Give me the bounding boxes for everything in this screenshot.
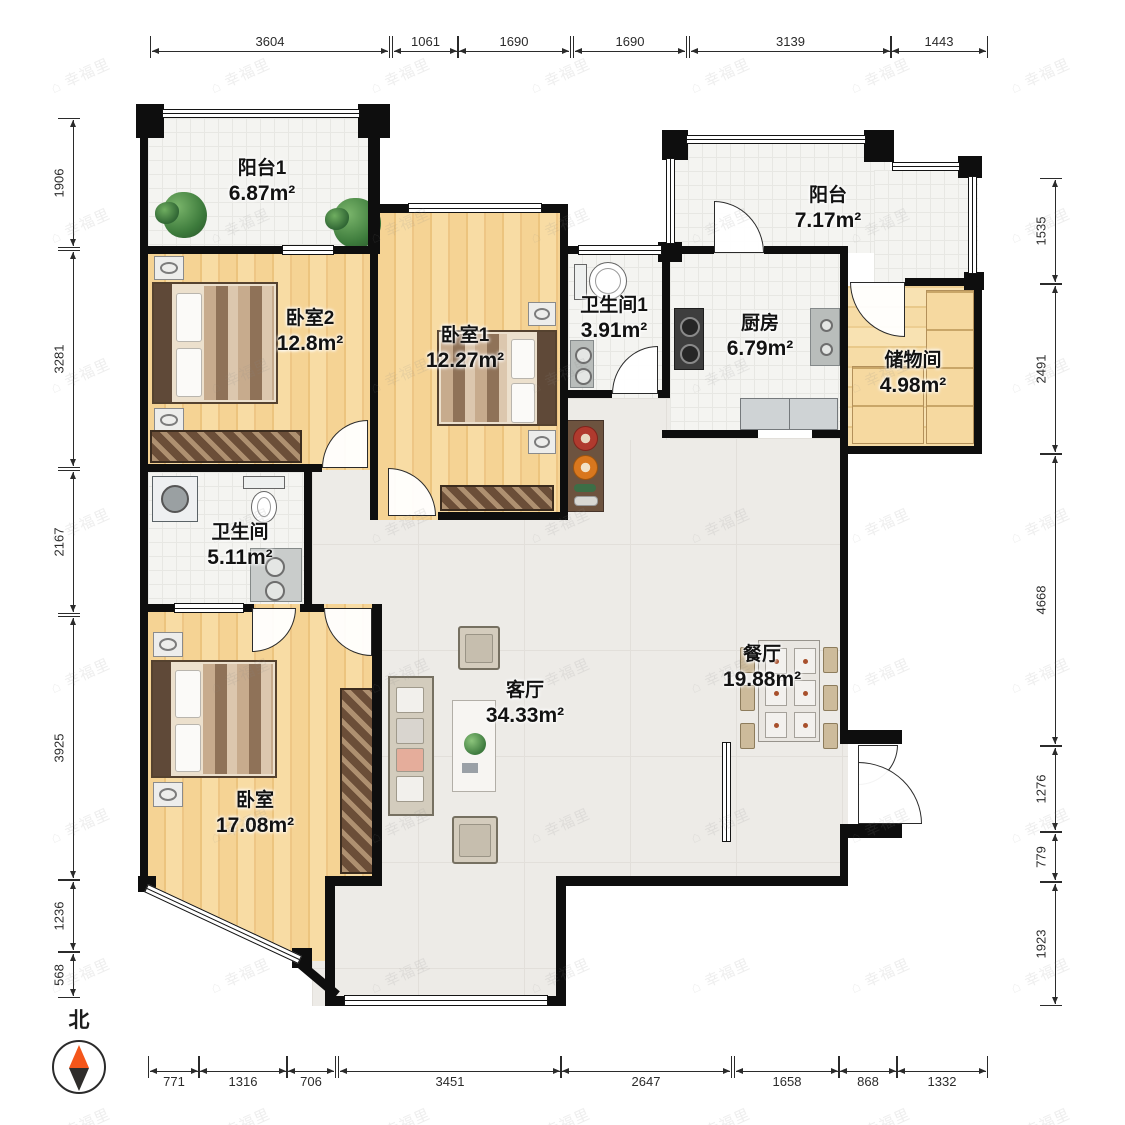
dim-value: 2491 [1034, 355, 1049, 384]
compass-needle-south [69, 1068, 89, 1091]
room-area: 34.33m² [455, 703, 595, 728]
dim-bottom-5: 1658 [734, 1056, 840, 1078]
wardrobe [150, 430, 302, 463]
washing-machine [152, 476, 198, 522]
dim-value: 3281 [52, 345, 67, 374]
compass-icon [52, 1040, 106, 1094]
nightstand [153, 632, 183, 657]
dim-right-1: 2491 [1040, 284, 1062, 454]
wall [546, 996, 566, 1006]
wall-post [958, 156, 982, 178]
north-label: 北 [46, 1004, 112, 1034]
wall [368, 108, 380, 253]
dim-left-2: 2167 [58, 470, 80, 614]
wall [300, 604, 324, 612]
dim-left-3: 3925 [58, 616, 80, 880]
window [968, 176, 977, 274]
room-area: 12.8m² [240, 331, 380, 356]
room-area: 19.88m² [700, 667, 824, 692]
dim-value: 1535 [1034, 217, 1049, 246]
wall [140, 246, 282, 254]
window [408, 203, 542, 213]
room-label-bedroom1: 卧室1 12.27m² [395, 325, 535, 373]
window [666, 158, 675, 244]
dim-value: 3925 [52, 734, 67, 763]
dim-right-3: 1276 [1040, 746, 1062, 832]
dim-value: 4668 [1034, 586, 1049, 615]
dim-value: 1658 [735, 1074, 839, 1089]
room-area: 17.08m² [185, 813, 325, 838]
wall-post [662, 130, 688, 160]
dim-bottom-6: 868 [838, 1056, 898, 1078]
dim-value: 2647 [561, 1074, 731, 1089]
room-name: 卧室2 [240, 308, 380, 331]
wall [840, 824, 902, 838]
room-area: 5.11m² [170, 545, 310, 570]
wall [140, 108, 148, 254]
wall [840, 446, 848, 734]
dim-left-4: 1236 [58, 880, 80, 952]
wall-post [864, 130, 894, 162]
dim-top-0: 3604 [150, 36, 390, 58]
nightstand [153, 782, 183, 807]
room-area: 6.79m² [690, 336, 830, 361]
wall [848, 446, 982, 454]
room-name: 阳台 [758, 185, 898, 208]
wall [560, 246, 580, 254]
wall [556, 876, 566, 1006]
dim-value: 1276 [1034, 775, 1049, 804]
dim-left-5: 568 [58, 952, 80, 998]
window [578, 245, 662, 255]
bath-vanity [570, 340, 594, 388]
room-name: 卧室 [185, 790, 325, 813]
dim-value: 568 [52, 964, 67, 986]
room-area: 3.91m² [558, 318, 670, 343]
entrance-door-leaf [858, 762, 922, 824]
wall [840, 730, 902, 744]
room-label-balcony2: 阳台 7.17m² [758, 185, 898, 233]
wall [140, 246, 148, 612]
wall [370, 253, 378, 520]
room-label-living: 客厅 34.33m² [455, 680, 595, 728]
wall [438, 512, 568, 520]
dim-top-2: 1690 [457, 36, 571, 58]
dim-value: 771 [149, 1074, 199, 1089]
outside-mask [566, 886, 848, 1008]
dining-chair [823, 647, 838, 673]
dim-value: 3451 [339, 1074, 561, 1089]
room-name: 餐厅 [700, 644, 824, 667]
room-name: 储物间 [843, 350, 983, 373]
room-label-kitchen: 厨房 6.79m² [690, 313, 830, 361]
dim-value: 1443 [891, 34, 987, 49]
room-label-dining: 餐厅 19.88m² [700, 644, 824, 692]
partition-screen [722, 742, 731, 842]
dim-bottom-4: 2647 [560, 1056, 732, 1078]
sofa [388, 676, 434, 816]
armchair [452, 816, 498, 864]
wall [905, 278, 982, 286]
nightstand [528, 302, 556, 326]
room-area: 4.98m² [843, 373, 983, 398]
nightstand [528, 430, 556, 454]
compass-needle-north [69, 1045, 89, 1068]
dim-value: 1906 [52, 169, 67, 198]
armchair [458, 626, 500, 670]
room-area: 7.17m² [758, 208, 898, 233]
dining-chair [823, 723, 838, 749]
room-label-balcony1: 阳台1 6.87m² [192, 158, 332, 206]
dim-left-1: 3281 [58, 250, 80, 468]
wall [764, 246, 848, 254]
room-label-bath2: 卫生间 5.11m² [170, 522, 310, 570]
dim-top-5: 1443 [890, 36, 988, 58]
dim-value: 1236 [52, 902, 67, 931]
dim-right-2: 4668 [1040, 454, 1062, 746]
dim-value: 1923 [1034, 930, 1049, 959]
window [686, 135, 866, 144]
wall [378, 204, 410, 213]
window [282, 245, 334, 255]
wall [840, 246, 848, 446]
window [344, 995, 548, 1006]
toilet-bowl [251, 491, 277, 523]
dim-bottom-0: 771 [148, 1056, 200, 1078]
dim-right-4: 779 [1040, 832, 1062, 882]
dim-value: 2167 [52, 528, 67, 557]
plant-icon [464, 733, 486, 755]
window [892, 162, 960, 171]
dim-value: 1690 [574, 34, 686, 49]
sideboard [566, 420, 604, 512]
dim-bottom-3: 3451 [338, 1056, 562, 1078]
dim-value: 1690 [458, 34, 570, 49]
dim-value: 1316 [199, 1074, 287, 1089]
room-area: 6.87m² [192, 181, 332, 206]
dining-chair [823, 685, 838, 711]
dim-value: 3604 [151, 34, 389, 49]
window [174, 603, 244, 613]
wall [556, 876, 848, 886]
fridge [740, 398, 838, 430]
wall [658, 390, 670, 398]
dim-bottom-1: 1316 [198, 1056, 288, 1078]
wall [372, 604, 382, 880]
dim-value: 3139 [690, 34, 891, 49]
room-label-bath1: 卫生间1 3.91m² [558, 295, 670, 343]
dim-right-0: 1535 [1040, 178, 1062, 284]
room-name: 卧室1 [395, 325, 535, 348]
wall [662, 430, 758, 438]
nightstand [154, 256, 184, 280]
dim-value: 706 [287, 1074, 335, 1089]
compass: 北 [46, 1004, 112, 1094]
dining-chair [740, 723, 755, 749]
dim-right-5: 1923 [1040, 882, 1062, 1006]
dim-top-3: 1690 [573, 36, 687, 58]
room-label-bedroom2: 卧室2 12.8m² [240, 308, 380, 356]
room-name: 客厅 [455, 680, 595, 703]
dim-value: 1061 [393, 34, 458, 49]
dim-value: 868 [839, 1074, 897, 1089]
window [162, 109, 360, 118]
toilet [243, 476, 285, 489]
dim-bottom-7: 1332 [896, 1056, 988, 1078]
dim-top-1: 1061 [392, 36, 459, 58]
dim-value: 779 [1034, 846, 1049, 868]
wall [140, 464, 322, 472]
dim-top-4: 3139 [689, 36, 892, 58]
floor-plan-canvas: 阳台1 6.87m² 卧室2 12.8m² 卧室1 12.27m² 卫生间1 3… [0, 0, 1125, 1125]
wardrobe [340, 688, 374, 874]
room-name: 阳台1 [192, 158, 332, 181]
nightstand [154, 408, 184, 432]
room-name: 厨房 [690, 313, 830, 336]
wall [140, 612, 148, 888]
dim-bottom-2: 706 [286, 1056, 336, 1078]
wall [140, 604, 174, 612]
room-name: 卫生间1 [558, 295, 670, 318]
wall [560, 390, 612, 398]
room-label-storage: 储物间 4.98m² [843, 350, 983, 398]
bed [151, 660, 277, 778]
wardrobe [440, 485, 554, 511]
room-name: 卫生间 [170, 522, 310, 545]
dim-value: 1332 [897, 1074, 987, 1089]
dim-left-0: 1906 [58, 118, 80, 248]
room-label-bedroom3: 卧室 17.08m² [185, 790, 325, 838]
room-area: 12.27m² [395, 348, 535, 373]
